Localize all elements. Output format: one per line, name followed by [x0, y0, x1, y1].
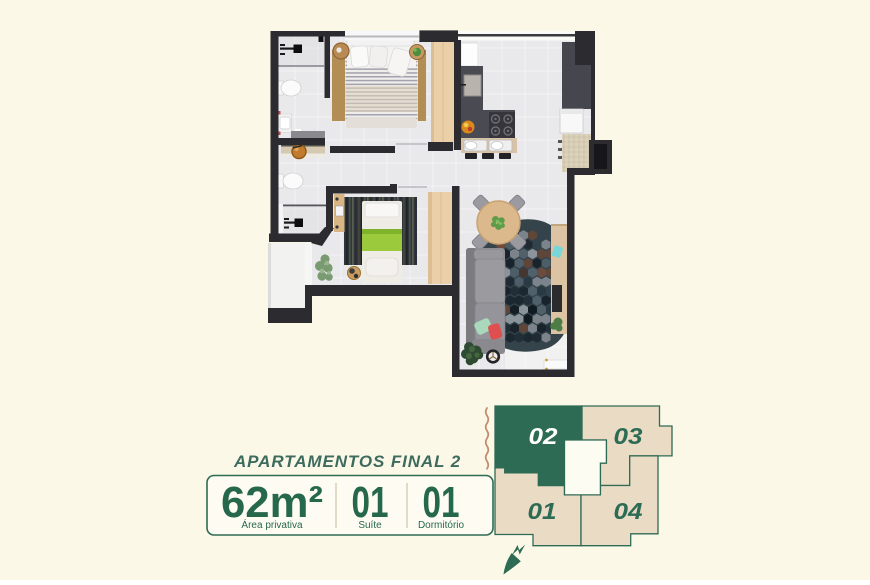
svg-text:04: 04 — [614, 498, 643, 524]
svg-text:Área privativa: Área privativa — [241, 518, 303, 531]
svg-text:01: 01 — [528, 498, 557, 524]
svg-text:Dormitório: Dormitório — [418, 520, 465, 531]
svg-text:Suíte: Suíte — [358, 520, 382, 531]
svg-text:02: 02 — [529, 423, 558, 449]
svg-text:APARTAMENTOS FINAL 2: APARTAMENTOS FINAL 2 — [233, 452, 461, 471]
svg-text:03: 03 — [614, 423, 643, 449]
